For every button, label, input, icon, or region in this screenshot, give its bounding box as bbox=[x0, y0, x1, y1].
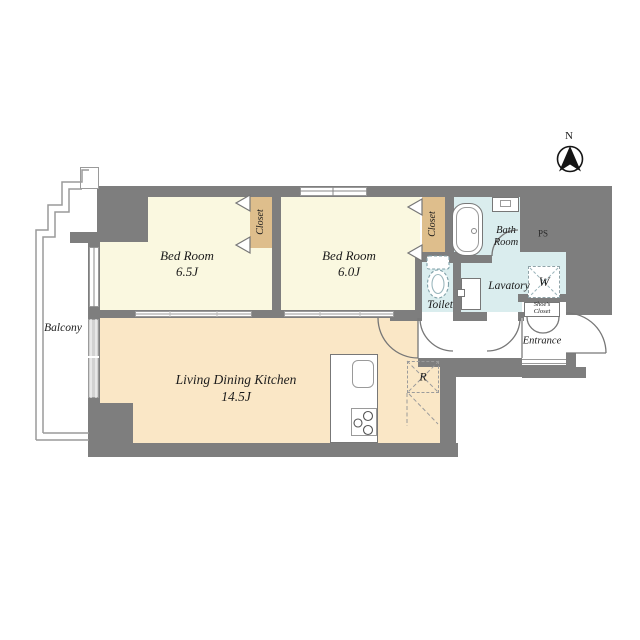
shoes-closet-line2: Closet bbox=[534, 309, 551, 316]
bathroom-name-line1: Bath bbox=[494, 225, 519, 237]
kitchen-sink bbox=[352, 360, 374, 388]
entrance-sill-line-1 bbox=[522, 359, 566, 360]
wall-ldk-east bbox=[440, 365, 456, 457]
refrigerator-label: R bbox=[419, 370, 426, 385]
balcony-label: Balcony bbox=[44, 321, 82, 335]
bathroom-name-line2: Room bbox=[494, 237, 519, 249]
sliding-door-bedroom2 bbox=[284, 311, 394, 317]
closet2-label: Closet bbox=[427, 211, 440, 237]
wall-toilet-lavatory bbox=[453, 262, 461, 312]
bedroom1-label: Bed Room 6.5J bbox=[160, 248, 214, 281]
ldk-name: Living Dining Kitchen bbox=[176, 372, 297, 389]
washer-label: W bbox=[539, 274, 550, 290]
bath-washbasin-bowl bbox=[500, 200, 511, 207]
shoes-closet-label: Shoe's Closet bbox=[534, 302, 551, 316]
toilet-label: Toilet bbox=[427, 298, 453, 312]
balcony-partition bbox=[80, 167, 99, 189]
bedroom2-size: 6.0J bbox=[322, 264, 376, 280]
closet1-label: Closet bbox=[255, 209, 268, 235]
bedroom2-name: Bed Room bbox=[322, 248, 376, 264]
ldk-size: 14.5J bbox=[176, 389, 297, 406]
entrance-label: Entrance bbox=[523, 334, 562, 347]
wall-northeast-block bbox=[520, 186, 612, 252]
bedroom1-size: 6.5J bbox=[160, 264, 214, 280]
entrance-sill-line-2 bbox=[522, 363, 566, 364]
wall-bottom-left-step bbox=[88, 403, 133, 448]
bedroom1-name: Bed Room bbox=[160, 248, 214, 264]
wall-bedroom2-toilet bbox=[415, 262, 422, 312]
pipe-space-label: PS bbox=[538, 228, 548, 239]
floor-plan: Bed Room 6.5J Bed Room 6.0J Living Dinin… bbox=[0, 0, 640, 640]
bathroom-label: Bath Room bbox=[494, 225, 519, 249]
wall-bath-south bbox=[445, 255, 492, 263]
lavatory-label: Lavatory bbox=[488, 279, 530, 293]
wall-bottom bbox=[88, 443, 458, 457]
lavatory-vanity-handle bbox=[457, 289, 465, 297]
wall-hall-stub-1 bbox=[390, 312, 422, 321]
window-bedroom2-north bbox=[300, 187, 367, 196]
bathtub-inner bbox=[456, 207, 479, 252]
wall-entrance-south bbox=[522, 367, 586, 378]
window-ldk-west bbox=[88, 319, 99, 398]
wall-east-block bbox=[566, 252, 612, 315]
sliding-door-bedroom1 bbox=[135, 311, 252, 317]
north-arrow-icon bbox=[558, 146, 583, 172]
ldk-label: Living Dining Kitchen 14.5J bbox=[176, 372, 297, 406]
kitchen-stove bbox=[351, 408, 377, 436]
wall-bedroom-divider bbox=[272, 197, 281, 312]
window-bedroom1-west bbox=[89, 247, 99, 307]
entrance-door-arc bbox=[566, 313, 606, 353]
balcony-outline bbox=[36, 170, 89, 440]
bedroom2-label: Bed Room 6.0J bbox=[322, 248, 376, 281]
north-label: N bbox=[565, 130, 573, 144]
wall-entrance-stub bbox=[566, 353, 576, 368]
wall-bedroom1-notch bbox=[97, 197, 148, 242]
hallway-floor bbox=[418, 318, 522, 358]
wall-hall-stub-2 bbox=[453, 312, 487, 321]
